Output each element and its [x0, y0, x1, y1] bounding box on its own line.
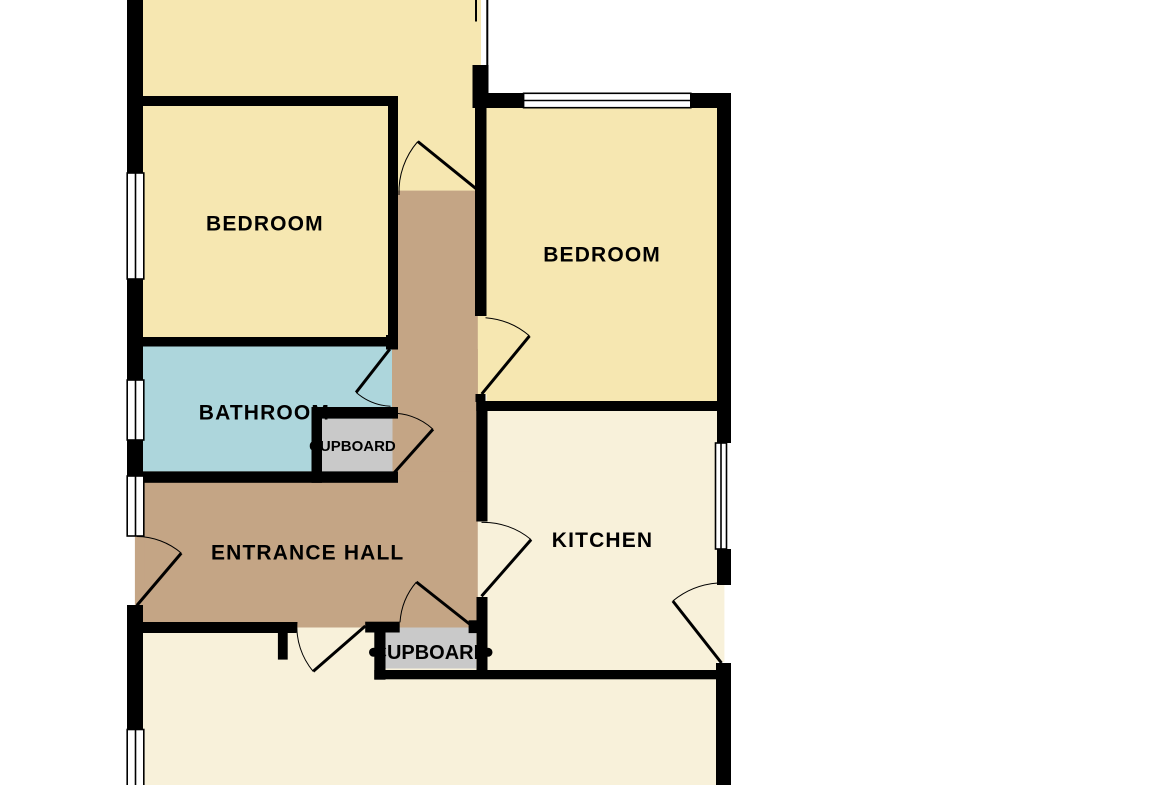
svg-text:ENTRANCE HALL: ENTRANCE HALL	[211, 542, 404, 565]
svg-text:BEDROOM: BEDROOM	[206, 212, 324, 235]
svg-text:KITCHEN: KITCHEN	[552, 529, 653, 552]
svg-text:CUPBOARD: CUPBOARD	[309, 438, 396, 455]
svg-text:BEDROOM: BEDROOM	[543, 243, 661, 266]
svg-text:BATHROOM: BATHROOM	[199, 402, 330, 425]
svg-text:CUPBOARD: CUPBOARD	[373, 642, 489, 664]
